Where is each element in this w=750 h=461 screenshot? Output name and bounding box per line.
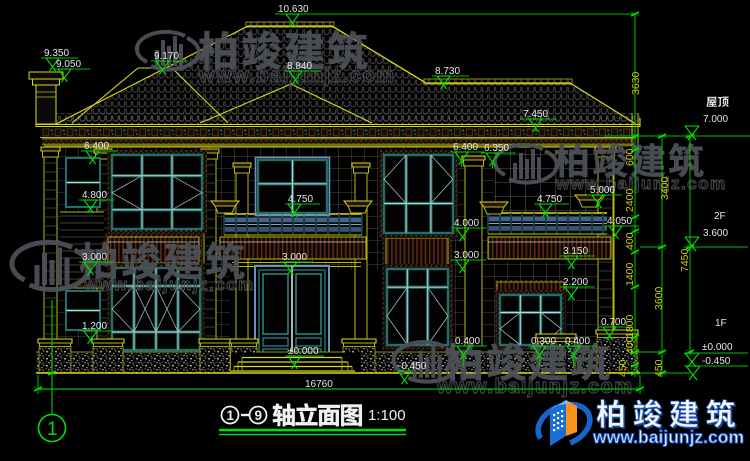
svg-text:6.400: 6.400 [84, 141, 109, 152]
svg-text:www.baijunjz.com: www.baijunjz.com [83, 275, 255, 294]
svg-text:6.400: 6.400 [453, 142, 478, 153]
svg-text:10.630: 10.630 [278, 4, 309, 15]
svg-text:3600: 3600 [653, 286, 665, 310]
svg-text:16760: 16760 [305, 379, 333, 390]
svg-text:9.350: 9.350 [44, 48, 69, 59]
svg-text:4.750: 4.750 [288, 194, 313, 205]
svg-text:1.200: 1.200 [82, 321, 107, 332]
svg-text:400: 400 [624, 336, 636, 354]
svg-text:600: 600 [624, 148, 636, 166]
svg-text:6.350: 6.350 [484, 143, 509, 154]
svg-text:7.450: 7.450 [523, 109, 548, 120]
svg-text:8.730: 8.730 [435, 66, 460, 77]
svg-text:1800: 1800 [624, 314, 636, 338]
svg-text:3.000: 3.000 [454, 250, 479, 261]
svg-text:4.750: 4.750 [537, 194, 562, 205]
svg-text:www.baijunjz.com: www.baijunjz.com [436, 376, 634, 398]
svg-text:3.600: 3.600 [703, 228, 728, 239]
svg-text:0.300: 0.300 [531, 336, 556, 347]
svg-text:2F: 2F [714, 211, 726, 222]
svg-text:1F: 1F [715, 318, 727, 329]
svg-text:4.000: 4.000 [454, 218, 479, 229]
svg-text:3.000: 3.000 [282, 252, 307, 263]
svg-text:4.050: 4.050 [607, 216, 632, 227]
svg-text:8.840: 8.840 [287, 61, 312, 72]
svg-text:3630: 3630 [630, 71, 642, 95]
svg-text:3.150: 3.150 [563, 246, 588, 257]
svg-text:-0.450: -0.450 [702, 356, 731, 367]
svg-text:2400: 2400 [624, 188, 636, 212]
svg-text:2.200: 2.200 [563, 277, 588, 288]
svg-text:400: 400 [624, 232, 636, 250]
svg-text:www.baijunjz.com: www.baijunjz.com [555, 174, 727, 193]
svg-text:9.170: 9.170 [154, 51, 179, 62]
svg-text:9: 9 [255, 408, 263, 423]
svg-text:1: 1 [47, 419, 58, 440]
svg-text:5.000: 5.000 [590, 185, 615, 196]
svg-text:±0.000: ±0.000 [288, 346, 319, 357]
svg-text:3.000: 3.000 [82, 252, 107, 263]
svg-text:3400: 3400 [659, 176, 671, 200]
svg-text:450: 450 [653, 359, 665, 377]
svg-text:4.800: 4.800 [82, 190, 107, 201]
svg-text:www.baijunjz.com: www.baijunjz.com [592, 427, 744, 447]
svg-text:9.050: 9.050 [56, 59, 81, 70]
svg-text:450: 450 [617, 359, 629, 377]
svg-text:7450: 7450 [679, 248, 691, 272]
svg-text:1:100: 1:100 [368, 407, 406, 424]
svg-text:0.400: 0.400 [455, 336, 480, 347]
svg-text:0.700: 0.700 [601, 317, 626, 328]
svg-text:±0.000: ±0.000 [702, 342, 733, 353]
svg-text:0.400: 0.400 [565, 336, 590, 347]
svg-text:-0.450: -0.450 [398, 361, 427, 372]
svg-text:1400: 1400 [624, 262, 636, 286]
svg-text:7.000: 7.000 [703, 114, 728, 125]
svg-text:1: 1 [227, 408, 235, 423]
